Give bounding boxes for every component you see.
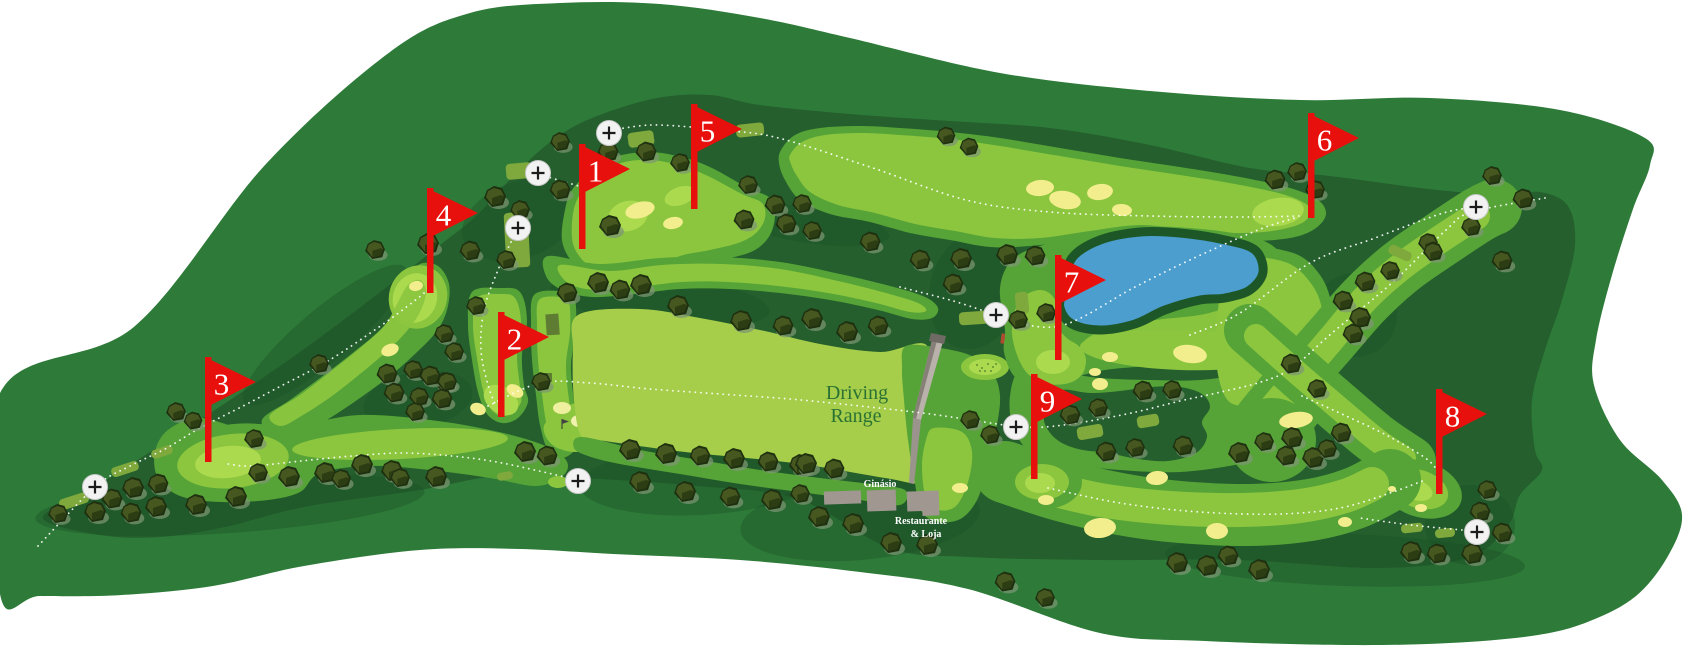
svg-text:Ginásio: Ginásio [864,479,897,490]
svg-text:1: 1 [588,154,604,189]
svg-text:7: 7 [1064,265,1080,300]
svg-text:& Loja: & Loja [911,529,942,540]
svg-text:4: 4 [436,198,452,233]
svg-text:9: 9 [1040,384,1056,419]
svg-text:6: 6 [1317,123,1333,158]
svg-text:8: 8 [1445,399,1461,434]
svg-text:5: 5 [700,114,716,149]
svg-text:Range: Range [830,405,881,427]
svg-text:3: 3 [214,367,230,402]
svg-text:Driving: Driving [826,382,888,404]
svg-text:Restaurante: Restaurante [895,516,948,527]
svg-text:2: 2 [507,322,523,357]
